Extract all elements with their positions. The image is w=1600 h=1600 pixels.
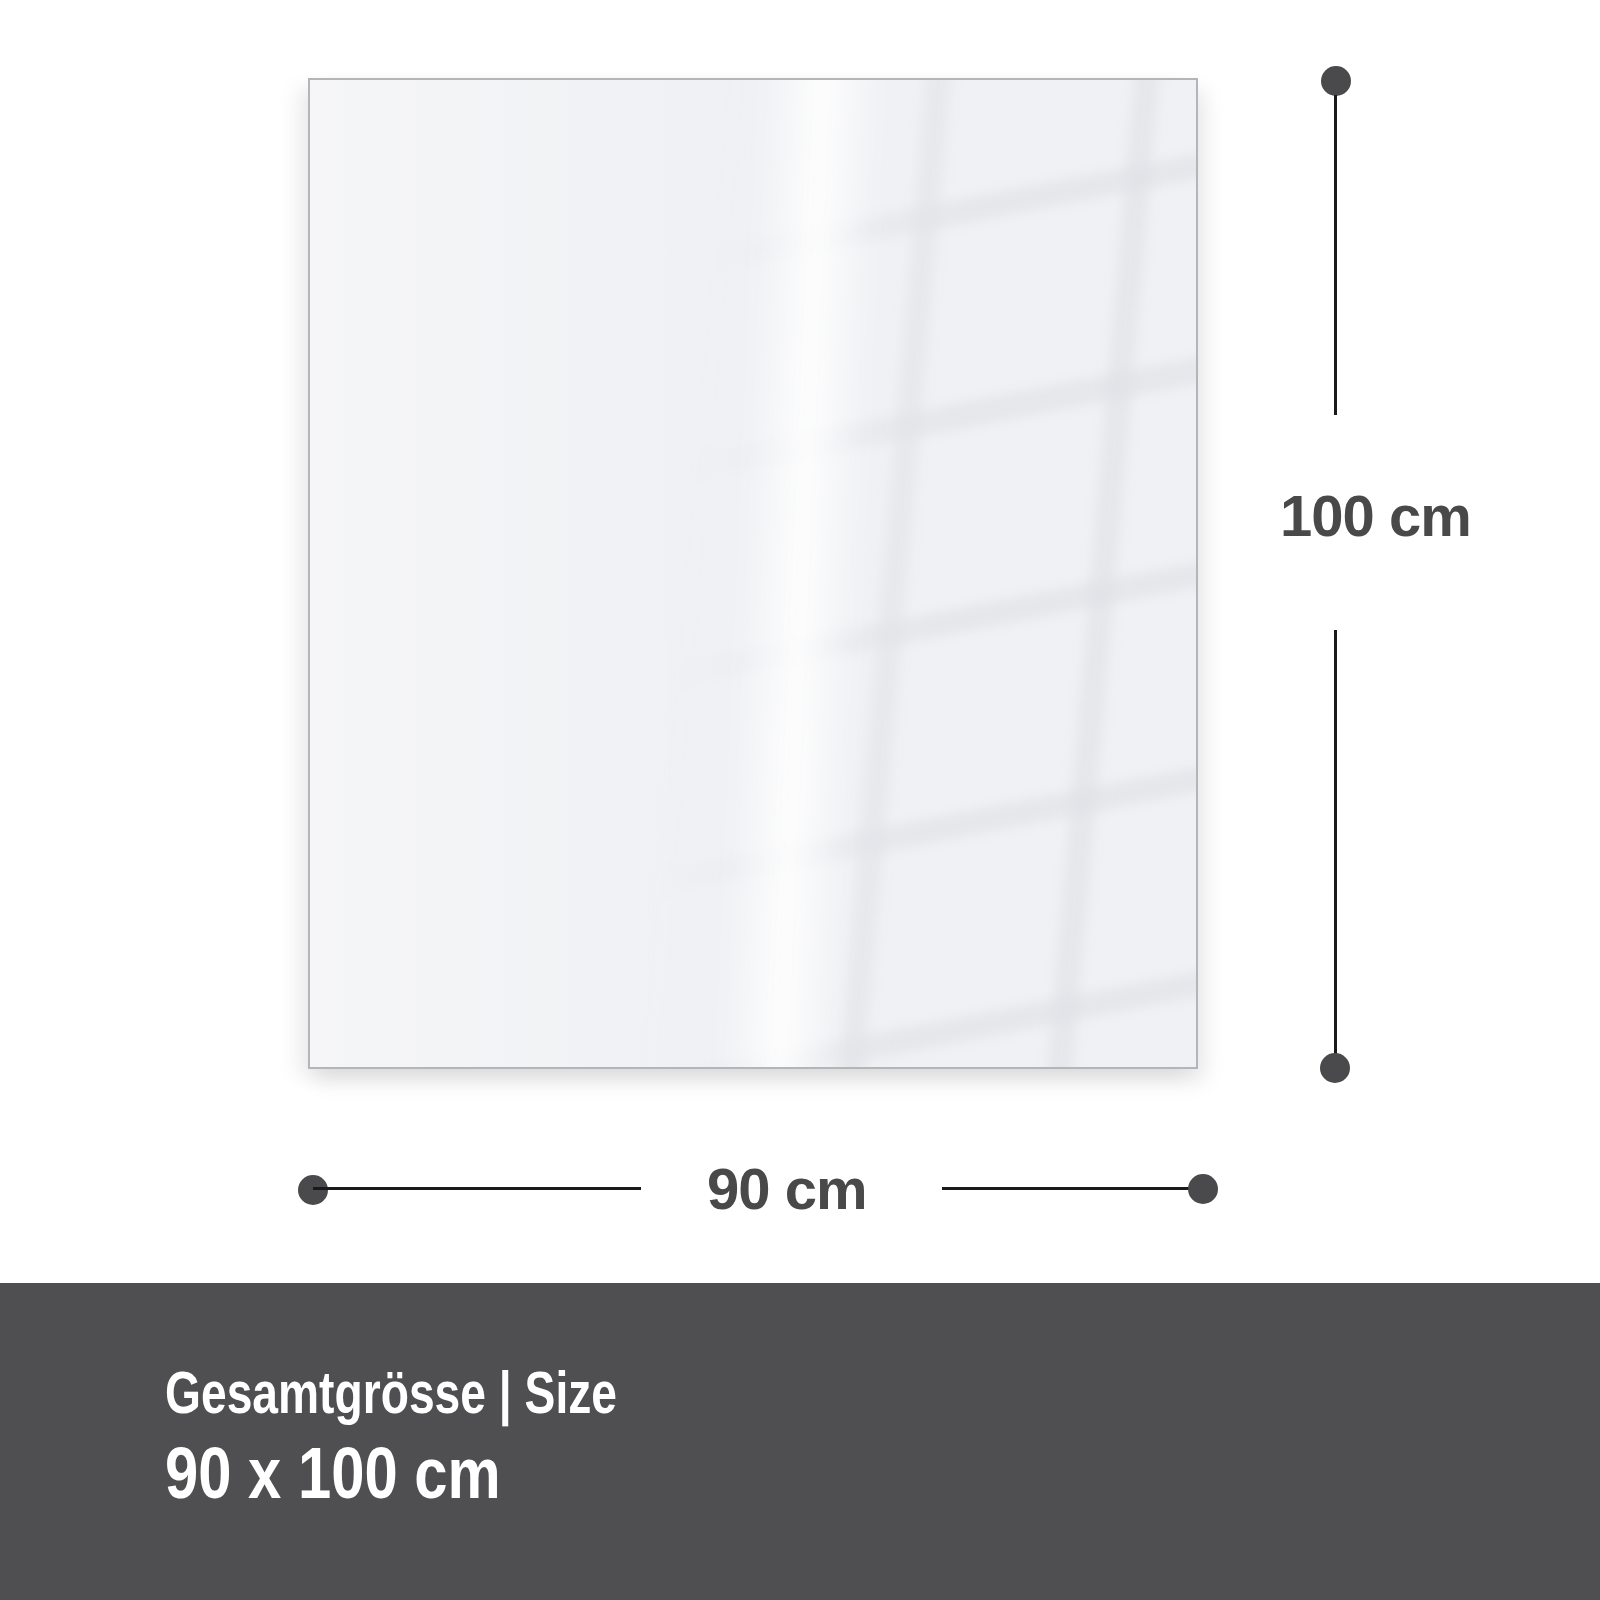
vertical-dimension-line-upper (1334, 95, 1337, 415)
vertical-dimension-line-lower (1334, 630, 1337, 1054)
footer-size-value: 90 x 100 cm (165, 1433, 501, 1513)
height-dimension-label: 100 cm (1280, 484, 1471, 548)
footer-size-title: Gesamtgrösse | Size (165, 1360, 617, 1426)
product-size-diagram: 100 cm 90 cm Gesamtgrösse | Size 90 x 10… (0, 0, 1600, 1600)
dimension-endpoint-dot-bottom (1320, 1053, 1350, 1083)
dimension-endpoint-dot-top (1321, 66, 1351, 96)
horizontal-dimension-line-right (942, 1187, 1203, 1190)
glass-panel-preview (308, 78, 1198, 1069)
dimension-endpoint-dot-right (1188, 1174, 1218, 1204)
width-dimension-label: 90 cm (707, 1157, 866, 1221)
horizontal-dimension-line-left (313, 1187, 641, 1190)
dimension-endpoint-dot-left (298, 1175, 328, 1205)
